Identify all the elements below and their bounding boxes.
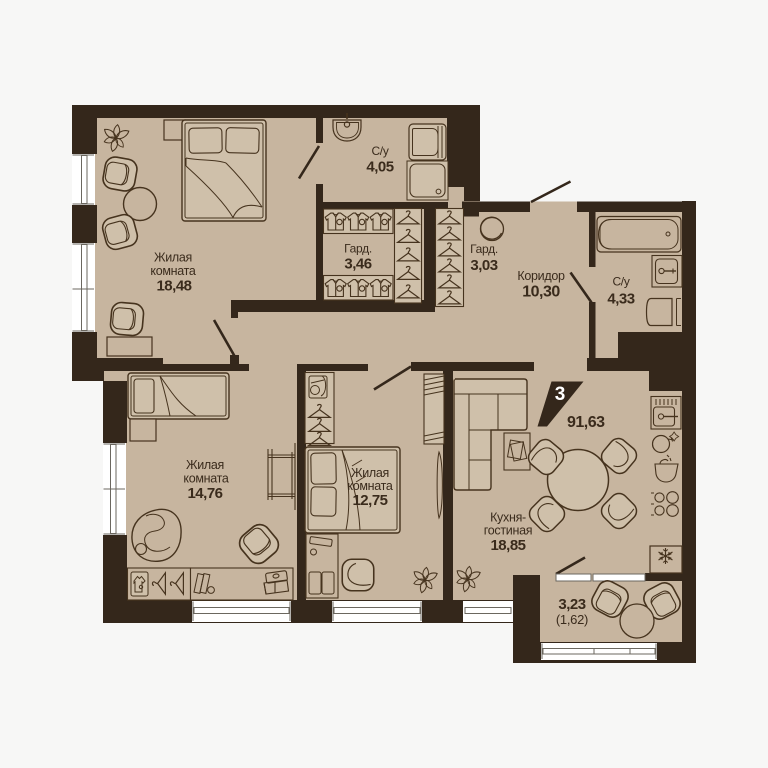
svg-text:гостиная: гостиная — [484, 524, 532, 538]
svg-text:комната: комната — [183, 472, 229, 486]
svg-text:комната: комната — [347, 479, 393, 493]
svg-text:Кухня-: Кухня- — [490, 511, 526, 525]
svg-text:10,30: 10,30 — [522, 284, 560, 301]
svg-text:4,33: 4,33 — [607, 291, 634, 308]
svg-text:Гард.: Гард. — [470, 242, 498, 256]
svg-text:18,85: 18,85 — [490, 537, 525, 554]
svg-text:3: 3 — [555, 384, 566, 405]
svg-text:91,63: 91,63 — [567, 414, 605, 431]
svg-text:Жилая: Жилая — [351, 466, 389, 480]
svg-text:18,48: 18,48 — [156, 278, 191, 295]
svg-text:3,03: 3,03 — [470, 257, 497, 274]
svg-text:4,05: 4,05 — [366, 159, 393, 176]
svg-text:С/у: С/у — [612, 275, 629, 289]
svg-text:Жилая: Жилая — [154, 251, 192, 265]
svg-text:Коридор: Коридор — [517, 269, 565, 283]
svg-text:Жилая: Жилая — [186, 458, 224, 472]
svg-text:14,76: 14,76 — [187, 485, 222, 502]
svg-text:3,46: 3,46 — [344, 256, 371, 273]
svg-text:комната: комната — [150, 264, 196, 278]
svg-text:(1,62): (1,62) — [556, 612, 588, 627]
svg-text:С/у: С/у — [371, 144, 388, 158]
svg-text:Гард.: Гард. — [344, 242, 372, 256]
svg-text:3,23: 3,23 — [558, 596, 585, 613]
svg-text:12,75: 12,75 — [352, 492, 387, 509]
